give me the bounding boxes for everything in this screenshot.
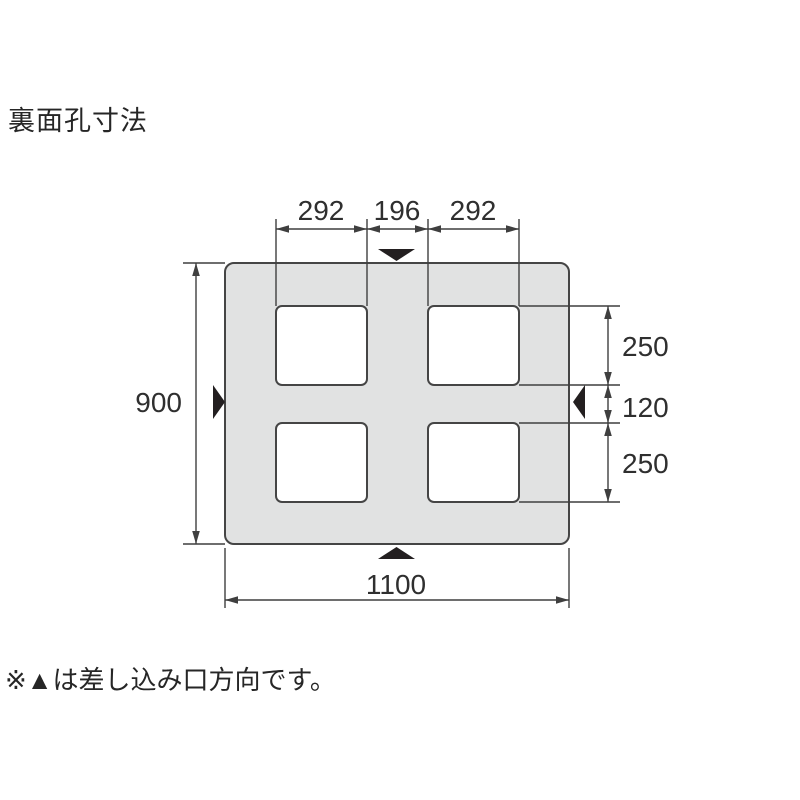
dimension-diagram-page: 裏面孔寸法 292 196 292 900 250	[0, 0, 800, 800]
dim-label-top-left-292: 292	[281, 197, 361, 225]
dim-label-right-upper-250: 250	[622, 333, 712, 361]
fork-hole-bottom-left	[276, 423, 367, 502]
dim-label-bottom-1100: 1100	[346, 571, 446, 599]
dim-label-left-900: 900	[102, 389, 182, 417]
insertion-marker-bottom-icon	[378, 547, 415, 559]
fork-hole-bottom-right	[428, 423, 519, 502]
insertion-marker-right-icon	[573, 385, 585, 419]
dim-label-right-middle-120: 120	[622, 394, 712, 422]
insertion-direction-note: ※▲は差し込み口方向です。	[5, 662, 336, 698]
insertion-marker-top-icon	[378, 249, 415, 261]
fork-hole-top-right	[428, 306, 519, 385]
dim-label-top-right-292: 292	[433, 197, 513, 225]
fork-hole-top-left	[276, 306, 367, 385]
dim-label-right-lower-250: 250	[622, 450, 712, 478]
insertion-marker-left-icon	[213, 385, 225, 419]
dim-label-top-center-196: 196	[357, 197, 437, 225]
